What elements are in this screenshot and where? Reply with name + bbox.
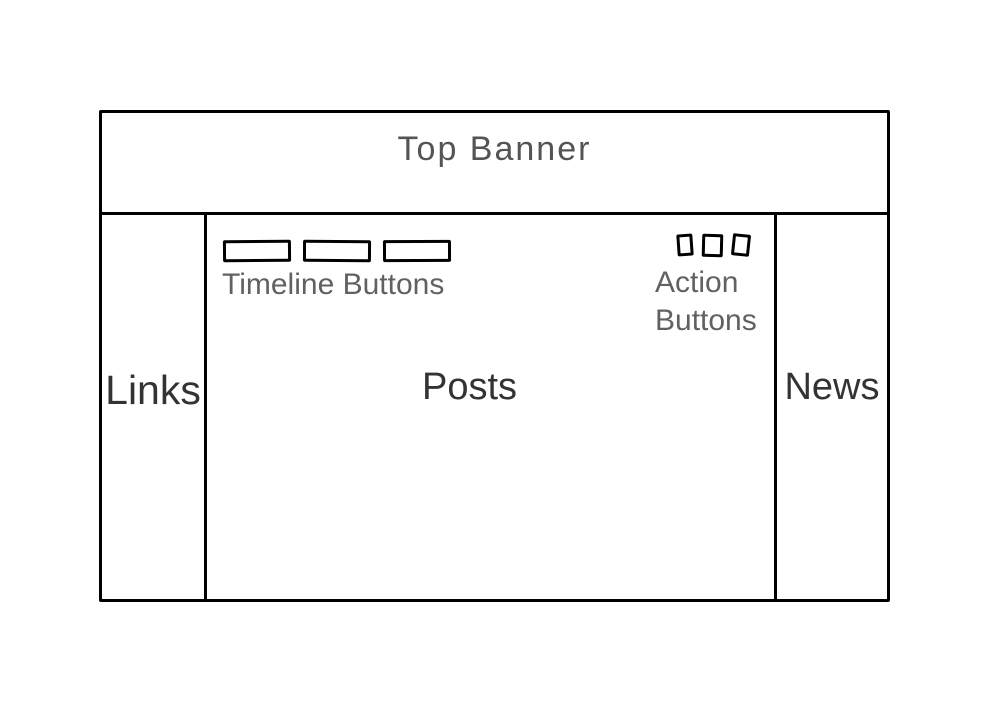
timeline-button[interactable]	[303, 240, 371, 262]
posts-region: Timeline Buttons Action Buttons Posts	[207, 215, 777, 599]
timeline-buttons-group	[223, 240, 451, 262]
timeline-button[interactable]	[383, 240, 451, 262]
links-label: Links	[105, 367, 201, 414]
posts-label: Posts	[422, 366, 517, 409]
content-columns: Links Timeline Buttons Action Buttons Po…	[102, 215, 887, 599]
action-buttons-group	[677, 234, 750, 257]
timeline-button[interactable]	[223, 240, 291, 263]
timeline-buttons-label: Timeline Buttons	[222, 268, 444, 302]
top-banner-region: Top Banner	[102, 113, 887, 215]
action-button[interactable]	[702, 234, 724, 258]
wireframe-canvas: Top Banner Links Timeline Buttons Action…	[0, 0, 1000, 713]
links-sidebar: Links	[102, 215, 207, 599]
top-banner-label: Top Banner	[398, 130, 592, 169]
action-buttons-label: Action Buttons	[655, 264, 777, 340]
news-label: News	[784, 366, 879, 409]
action-button[interactable]	[731, 233, 751, 257]
page-wireframe: Top Banner Links Timeline Buttons Action…	[99, 110, 890, 602]
news-sidebar: News	[777, 215, 887, 599]
action-button[interactable]	[676, 233, 693, 256]
